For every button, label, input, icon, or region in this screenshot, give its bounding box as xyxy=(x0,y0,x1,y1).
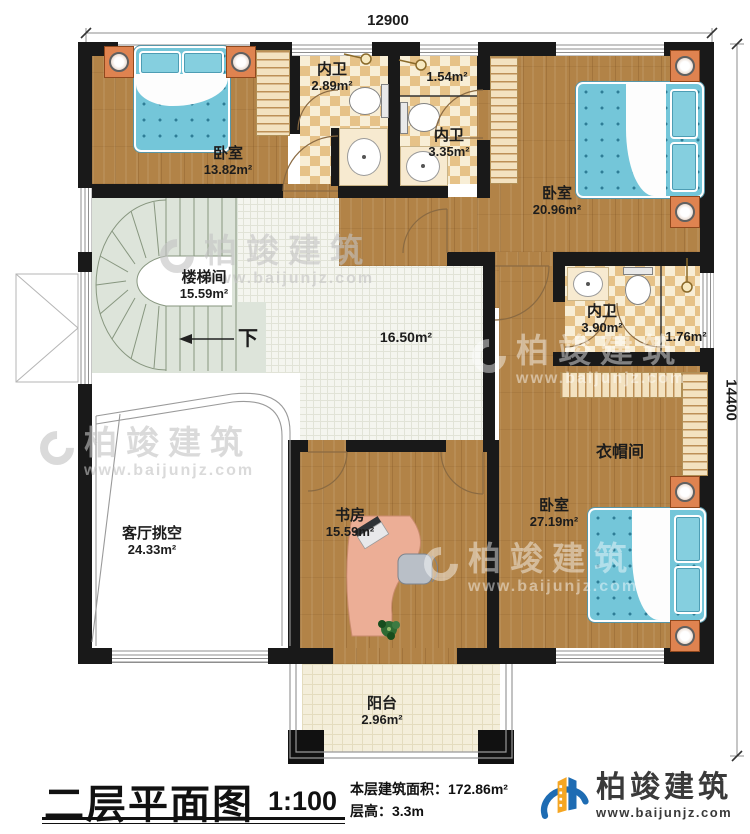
balcony-threshold xyxy=(333,648,457,664)
room-area: 2.96m² xyxy=(361,713,402,728)
room-name: 衣帽间 xyxy=(596,444,644,462)
window xyxy=(78,272,92,384)
bed xyxy=(134,46,230,152)
wall xyxy=(553,266,565,302)
wall xyxy=(478,42,556,56)
balcony-column xyxy=(478,730,514,764)
pillow xyxy=(674,566,702,614)
wardrobe xyxy=(490,56,518,184)
floor-area-stat: 本层建筑面积：172.86m² xyxy=(350,779,508,799)
bed xyxy=(588,508,706,622)
window xyxy=(420,42,478,56)
room-name: 阳台 xyxy=(361,696,402,713)
room-name: 卧室 xyxy=(533,186,581,203)
wall xyxy=(288,452,300,652)
room-area: 3.35m² xyxy=(428,145,469,160)
room-area: 1.76m² xyxy=(665,330,706,345)
room-name: 卧室 xyxy=(204,146,252,163)
floor-height-label: 层高： xyxy=(350,803,392,819)
wall xyxy=(477,140,490,198)
wall xyxy=(346,440,446,452)
door-strip xyxy=(283,184,338,198)
study-floor xyxy=(300,440,487,652)
company-logo: 柏竣建筑 www.baijunjz.com xyxy=(536,768,732,824)
wall xyxy=(331,128,339,186)
wall xyxy=(92,184,283,198)
room-name: 内卫 xyxy=(581,304,622,321)
room-label-cloakroom: 衣帽间 xyxy=(596,444,644,462)
lamp-icon xyxy=(675,626,695,646)
wardrobe xyxy=(682,372,708,476)
window xyxy=(556,648,664,664)
room-label-bedroom-br: 卧室 27.19m² xyxy=(530,498,578,529)
room-area: 16.50m² xyxy=(380,330,432,346)
nightstand xyxy=(226,46,256,78)
area-label-bath-mr-sub: 1.76m² xyxy=(665,330,706,345)
wall xyxy=(477,56,490,90)
wall xyxy=(553,252,714,266)
pillow xyxy=(670,89,698,139)
pillow xyxy=(182,51,224,75)
room-label-balcony: 阳台 2.96m² xyxy=(361,696,402,727)
dimension-top: 12900 xyxy=(367,12,409,29)
title-underline xyxy=(42,817,345,820)
toilet-icon xyxy=(349,87,381,115)
nightstand xyxy=(670,196,700,228)
drawing-title: 二层平面图 xyxy=(44,772,254,830)
lamp-icon xyxy=(675,482,695,502)
bed-sheet xyxy=(136,74,228,106)
wall xyxy=(553,352,714,366)
room-name: 内卫 xyxy=(311,62,352,79)
title-underline-thin xyxy=(42,823,345,824)
bed-sheet xyxy=(632,510,670,620)
drawing-scale: 1:100 xyxy=(268,786,337,817)
faucet-dot xyxy=(362,155,366,159)
area-label-bath-tc-sub: 1.54m² xyxy=(426,70,467,85)
wall xyxy=(483,266,495,440)
toilet-tank xyxy=(400,102,408,134)
nightstand xyxy=(670,476,700,508)
faucet-dot xyxy=(586,282,590,286)
floor-area-value: 172.86m² xyxy=(448,781,508,797)
lamp-icon xyxy=(109,52,129,72)
living-void-floor xyxy=(92,373,300,648)
room-name: 客厅挑空 xyxy=(122,526,182,543)
room-label-study: 书房 15.59m² xyxy=(326,508,374,539)
room-area: 15.59m² xyxy=(180,287,228,302)
window xyxy=(112,648,268,664)
wall xyxy=(487,452,499,652)
room-name: 楼梯间 xyxy=(180,270,228,287)
pillow xyxy=(670,142,698,192)
window xyxy=(556,42,664,56)
wardrobe xyxy=(560,372,682,398)
room-area: 27.19m² xyxy=(530,515,578,530)
room-area: 1.54m² xyxy=(426,70,467,85)
floor-area-label: 本层建筑面积： xyxy=(350,781,448,797)
room-area: 20.96m² xyxy=(533,203,581,218)
room-label-bath-tc: 内卫 3.35m² xyxy=(428,128,469,159)
window xyxy=(292,42,372,56)
company-name: 柏竣建筑 xyxy=(596,773,732,803)
area-label-hall: 16.50m² xyxy=(380,330,432,346)
nightstand xyxy=(670,620,700,652)
wall xyxy=(483,440,499,452)
room-label-stairwell: 楼梯间 15.59m² xyxy=(180,270,228,301)
room-name: 卧室 xyxy=(530,498,578,515)
faucet-dot xyxy=(421,164,425,168)
wall xyxy=(457,648,556,664)
dimension-right: 14400 xyxy=(723,379,740,421)
pillow xyxy=(139,51,181,75)
wall xyxy=(268,648,333,664)
room-label-bath-mr: 内卫 3.90m² xyxy=(581,304,622,335)
balcony-column xyxy=(288,730,324,764)
watermark-logo-icon xyxy=(33,424,81,472)
wall xyxy=(400,184,448,198)
bed-sheet xyxy=(626,84,666,196)
lamp-icon xyxy=(231,52,251,72)
stair-direction-label: 下 xyxy=(238,328,258,350)
pillow xyxy=(674,515,702,563)
room-name: 内卫 xyxy=(428,128,469,145)
toilet-tank xyxy=(623,267,653,275)
toilet-icon xyxy=(625,275,651,305)
wall xyxy=(388,42,400,184)
wall xyxy=(78,252,92,272)
wardrobe xyxy=(256,50,290,136)
floor-height-stat: 层高：3.3m xyxy=(350,801,424,821)
lamp-icon xyxy=(675,202,695,222)
company-url: www.baijunjz.com xyxy=(596,805,732,820)
nightstand xyxy=(104,46,134,78)
floor-plan-page: 柏竣建筑 www.baijunjz.com 柏竣建筑 www.baijunjz.… xyxy=(0,0,750,834)
room-name: 书房 xyxy=(326,508,374,525)
wall xyxy=(78,648,112,664)
room-area: 15.59m² xyxy=(326,525,374,540)
floor-height-value: 3.3m xyxy=(392,803,424,819)
wall xyxy=(288,440,308,452)
room-label-bath-tl: 内卫 2.89m² xyxy=(311,62,352,93)
bed xyxy=(576,82,704,198)
room-label-bedroom-tr: 卧室 20.96m² xyxy=(533,186,581,217)
lamp-icon xyxy=(675,56,695,76)
wall xyxy=(78,384,92,652)
company-logo-icon xyxy=(536,768,590,824)
nightstand xyxy=(670,50,700,82)
room-label-bedroom-tl: 卧室 13.82m² xyxy=(204,146,252,177)
room-area: 13.82m² xyxy=(204,163,252,178)
wall xyxy=(447,252,495,266)
room-area: 2.89m² xyxy=(311,79,352,94)
room-area: 3.90m² xyxy=(581,321,622,336)
room-label-living-void: 客厅挑空 24.33m² xyxy=(122,526,182,557)
room-area: 24.33m² xyxy=(122,543,182,558)
toilet-tank xyxy=(381,84,389,118)
wall xyxy=(338,184,400,198)
wall xyxy=(78,42,92,188)
window xyxy=(78,188,92,252)
